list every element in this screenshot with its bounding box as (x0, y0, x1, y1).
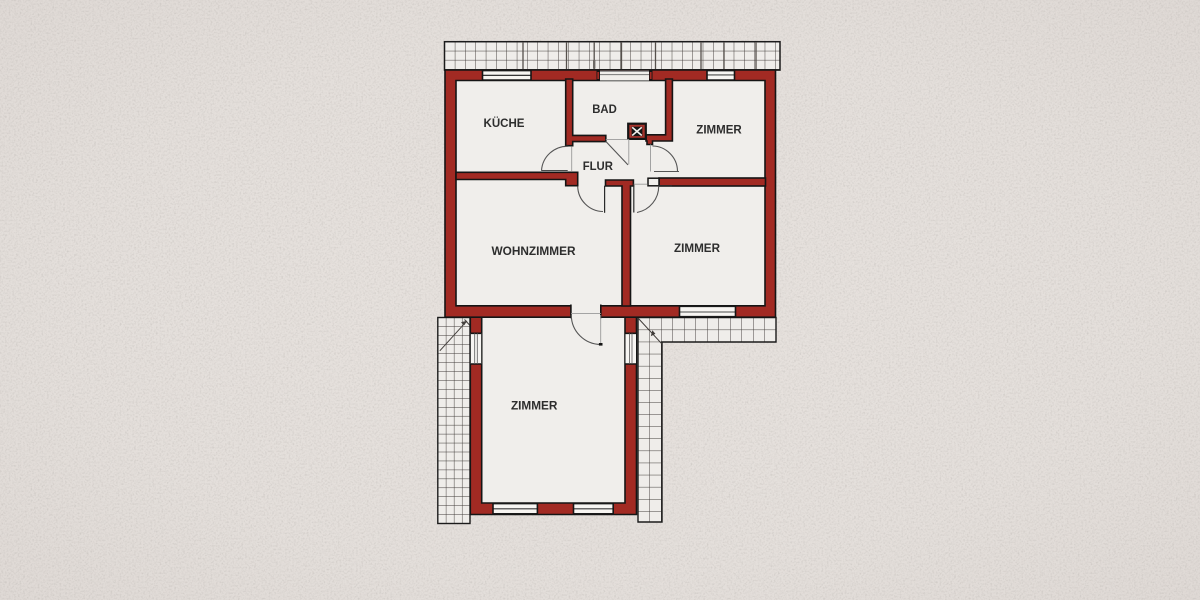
svg-text:WOHNZIMMER: WOHNZIMMER (492, 244, 576, 258)
svg-text:ZIMMER: ZIMMER (674, 241, 720, 255)
svg-text:KÜCHE: KÜCHE (484, 115, 525, 130)
svg-text:ZIMMER: ZIMMER (511, 398, 558, 412)
svg-text:FLUR: FLUR (583, 159, 613, 173)
svg-text:BAD: BAD (592, 102, 617, 116)
svg-text:ZIMMER: ZIMMER (696, 122, 742, 136)
